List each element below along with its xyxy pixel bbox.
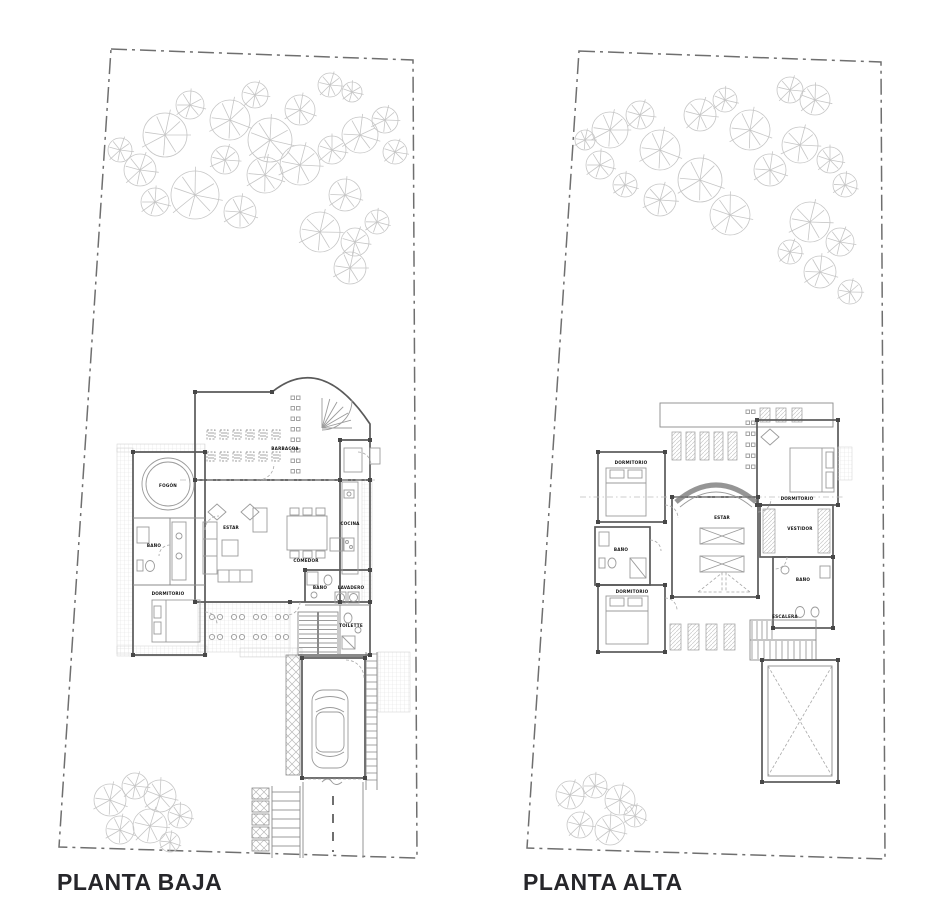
room-label-toilette: TOILETTE <box>339 623 363 628</box>
room-labels-pb: BARBACOA ESTAR COMEDOR COCINA FOGÓN BAÑO… <box>147 446 365 628</box>
room-label-estar: ESTAR <box>223 525 239 530</box>
kitchen-pb <box>342 448 362 574</box>
spiral-stair-icon <box>322 398 352 428</box>
west-bedroom-pb <box>152 600 200 642</box>
dining-set-pb <box>287 508 343 558</box>
arch-pa <box>676 485 756 507</box>
room-label-dormitorio-ppal: DORMITORIO <box>781 496 814 501</box>
room-label-bano1: BAÑO <box>614 547 629 552</box>
floorplan-sheet: BARBACOA ESTAR COMEDOR COCINA FOGÓN BAÑO… <box>0 0 950 919</box>
room-label-vestidor: VESTIDOR <box>787 526 813 531</box>
room-label-bano-w: BAÑO <box>147 543 162 548</box>
hall-furniture-pa <box>698 528 750 592</box>
service-rooms-pb <box>307 572 361 649</box>
lot-planta-baja: BARBACOA ESTAR COMEDOR COCINA FOGÓN BAÑO… <box>59 49 417 858</box>
stairs-pa <box>750 620 816 660</box>
caption-planta-baja: PLANTA BAJA <box>57 869 222 896</box>
garage-driveway-pb <box>252 652 377 858</box>
lot-planta-alta: DORMITORIO DORMITORIO ESTAR VESTIDOR BAÑ… <box>527 51 885 859</box>
room-label-fogon: FOGÓN <box>159 483 177 488</box>
room-label-barbacoa: BARBACOA <box>271 446 299 451</box>
room-label-lavadero: LAVADERO <box>338 585 365 590</box>
stairs-pb <box>298 612 338 655</box>
column-markers-pa <box>596 418 840 784</box>
room-label-dormitorio1: DORMITORIO <box>615 460 648 465</box>
room-label-escalera: ESCALERA <box>772 614 798 619</box>
living-furniture-pb <box>203 504 267 582</box>
caption-planta-alta: PLANTA ALTA <box>523 869 683 896</box>
room-label-dormitorio2: DORMITORIO <box>616 589 649 594</box>
car-icon <box>312 690 348 768</box>
room-label-cocina: COCINA <box>340 521 360 526</box>
west-bath-pb <box>137 522 186 580</box>
void-over-garage-pa <box>762 660 838 782</box>
room-label-dormitorio-pb: DORMITORIO <box>152 591 185 596</box>
floorplan-drawing: BARBACOA ESTAR COMEDOR COCINA FOGÓN BAÑO… <box>0 0 950 875</box>
tree-cluster-pa-icon <box>556 75 864 845</box>
room-label-comedor: COMEDOR <box>293 558 319 563</box>
room-label-bano2: BAÑO <box>796 577 811 582</box>
room-label-estar-intimo: ESTAR <box>714 515 730 520</box>
room-label-bano-se: BAÑO <box>313 585 328 590</box>
